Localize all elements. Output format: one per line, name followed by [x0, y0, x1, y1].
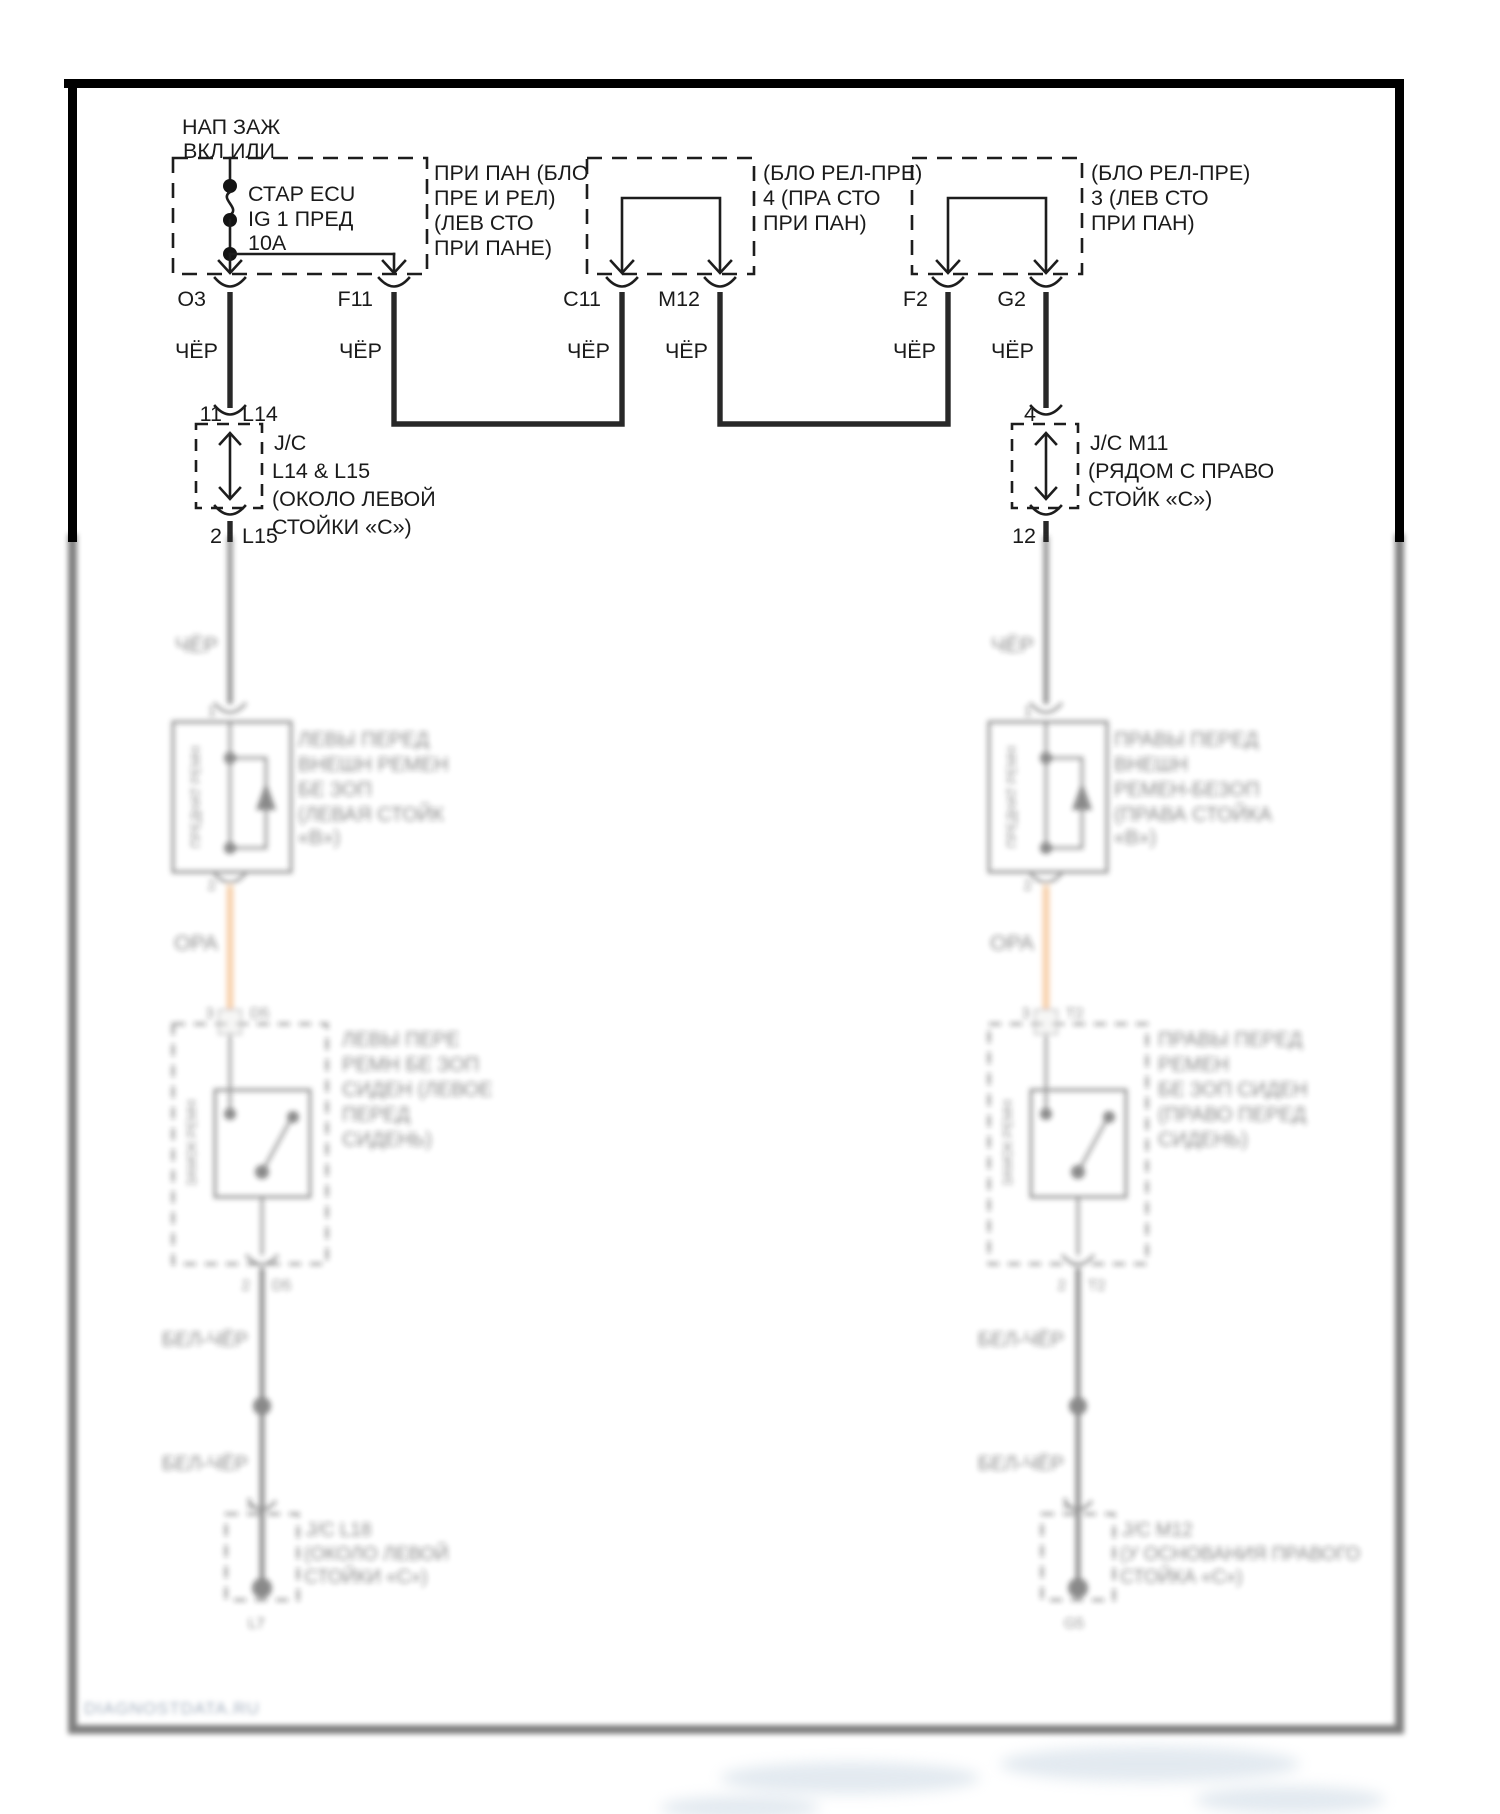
- retractor-right-node-top: [1040, 752, 1052, 764]
- inline-connector-left-pin: 3: [206, 1005, 214, 1022]
- buckle-right-label-line2: РЕМЕН: [1158, 1054, 1229, 1076]
- smudge-blob: [660, 1796, 820, 1814]
- buckle-right-label-line1: ПРАВЫ ПЕРЕД: [1158, 1029, 1303, 1051]
- wire-color-label: ОРА: [990, 931, 1035, 955]
- wire-color-label: ЧЁР: [893, 339, 936, 363]
- jc-bottom-right-note-line2: (У ОСНОВАНИЯ ПРАВОГО: [1120, 1544, 1360, 1565]
- buckle-left-switch-arm: [262, 1119, 291, 1172]
- buckle-right-conn-name: T2: [1088, 1277, 1106, 1294]
- buckle-right-pin-out: 2: [1058, 1277, 1066, 1294]
- retractor-left-pin-out: 2: [208, 877, 216, 894]
- retractor-left-node-bottom: [224, 842, 236, 854]
- smudge-blob: [1000, 1746, 1300, 1782]
- wiring-diagram-canvas: НАП ЗАЖ ВКЛ ИЛИ СТАР ECU IG 1 ПРЕД 10А П…: [0, 0, 1500, 1814]
- inline-connector-left: [219, 1010, 241, 1034]
- relay-mid-jumper-wire: [622, 198, 720, 271]
- connector-socket-icon: [705, 278, 735, 287]
- jc-left-note-line1: J/C: [274, 431, 306, 455]
- fuse-label-line1: СТАР ECU: [248, 182, 355, 206]
- retractor-right-label-line3: РЕМЕН-БЕЗОП: [1114, 779, 1260, 801]
- connector-socket-icon: [215, 704, 245, 713]
- watermark-text: DIAGNOSTDATA.RU: [84, 1699, 260, 1718]
- buckle-left-contact-fixed: [224, 1108, 236, 1120]
- buckle-right-contact-fixed: [1040, 1108, 1052, 1120]
- jc-right-note-line3: СТОЙК «С»): [1088, 486, 1212, 511]
- pin-label-f2: F2: [903, 287, 928, 311]
- connector-socket-icon: [1063, 1256, 1093, 1265]
- jc-bottom-left-note-line1: J/C L18: [306, 1520, 371, 1541]
- retractor-left-pin-in: 1: [208, 703, 216, 720]
- wire-color-label: ЧЁР: [665, 339, 708, 363]
- buckle-right-switch-arm: [1078, 1119, 1107, 1172]
- pin-label-g2: G2: [997, 287, 1026, 311]
- wire-color-label: ЧЁР: [567, 339, 610, 363]
- retractor-left-label-line5: «В»): [298, 827, 340, 849]
- jc-left-name-top: L14: [242, 402, 278, 426]
- connector-socket-icon: [1031, 874, 1061, 883]
- relay-mid-note-line2: 4 (ПРА СТО: [763, 186, 880, 210]
- retractor-left-node-top: [224, 752, 236, 764]
- pin-label-c11: C11: [563, 287, 601, 311]
- buckle-left-label-line1: ЛЕВЫ ПЕРЕ: [342, 1029, 459, 1051]
- fuse-label-line3: 10А: [248, 231, 287, 255]
- connector-socket-icon: [215, 874, 245, 883]
- connector-socket-icon: [215, 278, 245, 287]
- fuse-location-note-line1: ПРИ ПАН (БЛО: [434, 161, 589, 185]
- jc-left-note-line2: L14 & L15: [272, 459, 370, 483]
- connector-socket-icon: [379, 278, 409, 287]
- pin-label-f11: F11: [338, 287, 373, 311]
- fuse-symbol: [227, 192, 233, 215]
- retractor-right-label-line5: «В»): [1114, 827, 1156, 849]
- inline-connector-right-name: T2: [1066, 1005, 1084, 1022]
- inline-connector-left-name: D5: [250, 1005, 269, 1022]
- arrow-up-filled-icon: [256, 782, 276, 810]
- relay-mid-note-line1: (БЛО РЕЛ-ПРЕ): [763, 161, 922, 185]
- wiring-diagram-page: НАП ЗАЖ ВКЛ ИЛИ СТАР ECU IG 1 ПРЕД 10А П…: [0, 0, 1500, 1814]
- jc-bottom-left-note-line2: (ОКОЛО ЛЕВОЙ: [304, 1543, 449, 1565]
- top-section: НАП ЗАЖ ВКЛ ИЛИ СТАР ECU IG 1 ПРЕД 10А П…: [64, 79, 1404, 548]
- wire-color-label: ОРА: [174, 931, 219, 955]
- relay-mid-note-line3: ПРИ ПАН): [763, 211, 867, 235]
- connector-socket-icon: [1031, 278, 1061, 287]
- retractor-left-side-label: ПРЕДНАТ РЕМН: [188, 746, 203, 848]
- jc-right-note-line2: (РЯДОМ С ПРАВО: [1088, 459, 1274, 483]
- buckle-left-label-line4: ПЕРЕД: [342, 1104, 410, 1126]
- jc-right-note-line1: J/C M11: [1090, 431, 1168, 455]
- inline-connector-right: [1035, 1010, 1057, 1034]
- buckle-left-conn-name: D5: [272, 1277, 291, 1294]
- jc-bottom-right-note-line1: J/C M12: [1122, 1520, 1193, 1541]
- buckle-left-label-line3: СИДЕН (ЛЕВОЕ: [342, 1079, 492, 1101]
- wire-color-label: ЧЁР: [991, 339, 1034, 363]
- page-smudges: [660, 1746, 1385, 1814]
- splice-dot-left: [253, 1397, 271, 1415]
- connector-socket-icon: [933, 278, 963, 287]
- connector-socket-icon: [607, 278, 637, 287]
- retractor-right-side-label: ПРЕДНАТ РЕМН: [1004, 746, 1019, 848]
- buckle-right-label-line5: СИДЕНЬ): [1158, 1129, 1248, 1151]
- buckle-right-side-label: ЗАМОК РЕМН: [1000, 1100, 1015, 1186]
- retractor-left-label-line2: ВНЕШН РЕМЕН: [298, 754, 449, 776]
- retractor-right-node-bottom: [1040, 842, 1052, 854]
- fuse-location-note-line4: ПРИ ПАНЕ): [434, 236, 552, 260]
- wire-color-label: ЧЁР: [991, 633, 1034, 657]
- ground-name-right: G5: [1064, 1615, 1084, 1632]
- retractor-right-label-line2: ВНЕШН: [1114, 754, 1188, 776]
- wire-color-label: ЧЁР: [339, 339, 382, 363]
- wire-color-label: ЧЁР: [175, 339, 218, 363]
- pin-label-o3: O3: [177, 287, 206, 311]
- retractor-left-label-line4: (ЛЕВАЯ СТОЙК: [298, 802, 444, 826]
- buckle-left-label-line2: РЕМН БЕ ЗОП: [342, 1054, 479, 1076]
- relay-right-jumper-wire: [948, 198, 1046, 271]
- wire-color-label: БЕЛ-ЧЁР: [978, 1329, 1064, 1351]
- jc-right-pin-bottom: 12: [1012, 524, 1036, 548]
- wire-color-label: БЕЛ-ЧЁР: [978, 1453, 1064, 1475]
- jc-bottom-left-note-line3: СТОЙКИ «С»): [304, 1566, 427, 1588]
- buckle-left-pin-out: 2: [242, 1277, 250, 1294]
- buckle-right-label-line4: (ПРАВО ПЕРЕД: [1158, 1104, 1307, 1126]
- relay-right-note-line3: ПРИ ПАН): [1091, 211, 1195, 235]
- retractor-left-label-line1: ЛЕВЫ ПЕРЕД: [298, 729, 429, 751]
- fuse-label-line2: IG 1 ПРЕД: [248, 207, 354, 231]
- retractor-right-pin-in: 1: [1024, 703, 1032, 720]
- fuse-location-note-line3: (ЛЕВ СТО: [434, 211, 534, 235]
- relay-block-mid-box: [587, 158, 754, 274]
- smudge-blob: [720, 1762, 980, 1794]
- power-source-label-line1: НАП ЗАЖ: [182, 115, 280, 139]
- buckle-left-side-label: ЗАМОК РЕМН: [184, 1100, 199, 1186]
- arrow-up-filled-icon: [1072, 782, 1092, 810]
- relay-right-note-line1: (БЛО РЕЛ-ПРЕ): [1091, 161, 1250, 185]
- buckle-left-label-line5: СИДЕНЬ): [342, 1129, 432, 1151]
- ground-name-left: L7: [248, 1615, 265, 1632]
- jc-left-pin-bottom: 2: [210, 524, 222, 548]
- wire-color-label: БЕЛ-ЧЁР: [162, 1329, 248, 1351]
- buckle-right-label-line3: БЕ ЗОП СИДЕН: [1158, 1079, 1308, 1101]
- ground-dot-left: [252, 1578, 272, 1598]
- blurred-lower-section: ЧЁР 1 ПРЕДНАТ РЕМН ЛЕВЫ ПЕРЕД ВНЕШН РЕМЕ…: [68, 534, 1404, 1734]
- relay-right-note-line2: 3 (ЛЕВ СТО: [1091, 186, 1209, 210]
- wire-color-label: ЧЁР: [175, 633, 218, 657]
- jc-left-pin-top: 11: [200, 402, 222, 426]
- inline-connector-right-pin: 3: [1022, 1005, 1030, 1022]
- jc-bottom-right-note-line3: СТОЙКА «С»): [1120, 1566, 1242, 1588]
- jc-left-note-line3: (ОКОЛО ЛЕВОЙ: [272, 486, 436, 511]
- retractor-left-label-line3: БЕ ЗОП: [298, 779, 372, 801]
- ground-dot-right: [1068, 1578, 1088, 1598]
- pin-label-m12: M12: [658, 287, 700, 311]
- fuse-location-note-line2: ПРЕ И РЕЛ): [434, 186, 555, 210]
- retractor-right-pin-out: 2: [1024, 877, 1032, 894]
- splice-dot-right: [1069, 1397, 1087, 1415]
- smudge-blob: [1195, 1786, 1385, 1814]
- relay-block-right-box: [912, 158, 1082, 274]
- jc-left-note-line4: СТОЙКИ «С»): [272, 514, 412, 539]
- connector-socket-icon: [1031, 704, 1061, 713]
- wire-color-label: БЕЛ-ЧЁР: [162, 1453, 248, 1475]
- retractor-right-label-line4: (ПРАВА СТОЙКА: [1114, 802, 1273, 826]
- retractor-right-label-line1: ПРАВЫ ПЕРЕД: [1114, 729, 1259, 751]
